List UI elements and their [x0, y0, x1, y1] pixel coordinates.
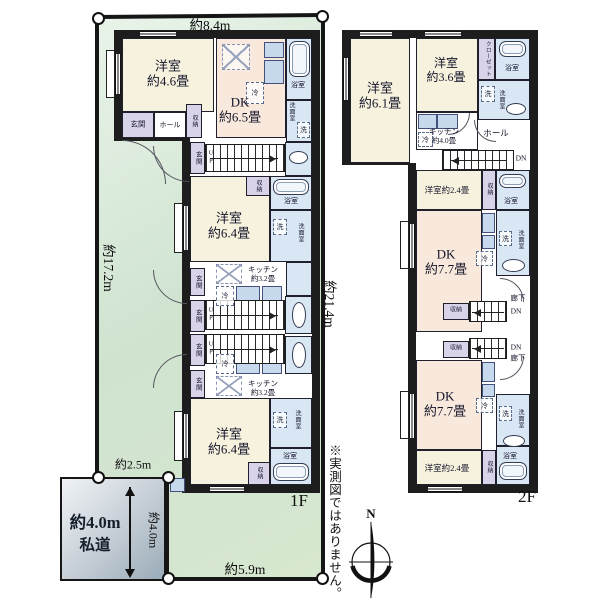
- label-western-4-6: 洋室 約4.6畳: [147, 59, 189, 90]
- shutter-box: [174, 203, 183, 253]
- label-dk-6-5: DK 約6.5畳: [219, 95, 261, 126]
- dimension-left: 約17.2m: [100, 244, 120, 292]
- label-wash-u2: 洗面室: [297, 223, 303, 243]
- table-u3: [216, 376, 242, 396]
- toilet-2f-c: [503, 435, 525, 447]
- stairs-arrow: [472, 348, 504, 349]
- label-kitchen-u2: キッチン 約3.2畳: [248, 266, 278, 284]
- toilet-2f-b: [502, 259, 525, 272]
- bathtub-u1: [289, 41, 310, 77]
- floor-2-tag: 2F: [518, 487, 536, 507]
- road-arrow-line: [129, 487, 131, 573]
- boundary-marker: [316, 572, 329, 585]
- label-western-6-4-a: 洋室 約6.4畳: [208, 211, 250, 242]
- toilet-c: [292, 342, 306, 368]
- table-u2: [216, 264, 242, 284]
- label-corridor-2: 廊下: [511, 355, 526, 364]
- floor-1-tag: 1F: [290, 491, 308, 511]
- label-bath-u1: 浴室: [291, 81, 305, 89]
- ps-box: [286, 262, 312, 296]
- label-dn-1: DN: [516, 155, 527, 164]
- label-dn-3: DN: [511, 344, 522, 353]
- label-closet-u1: 収納: [191, 115, 197, 128]
- window: [343, 58, 349, 100]
- washer-u4: 洗: [273, 412, 287, 428]
- dimension-top: 約8.4m: [190, 14, 231, 34]
- sink-u1: [264, 60, 284, 84]
- window: [409, 224, 415, 268]
- dimension-narrow: 約2.5m: [115, 456, 151, 473]
- label-hall-u1: ホール: [160, 121, 181, 129]
- stove-2f-dk-b: [482, 384, 495, 397]
- stairs-arrow: [450, 160, 506, 161]
- label-kitchen-u3: キッチン 約3.2畳: [248, 380, 278, 398]
- label-wash-u4: 洗面室: [294, 410, 300, 430]
- window: [428, 486, 462, 492]
- sink-2f-dk-a: [482, 213, 495, 233]
- label-2f-closet-c: 収納: [486, 461, 492, 474]
- toilet-b: [292, 302, 306, 328]
- washer-2f-c: 洗: [499, 406, 512, 421]
- stove-u1: [264, 42, 284, 58]
- window: [140, 31, 176, 37]
- table-u1: [222, 44, 250, 70]
- label-closet-u4: 収納: [256, 467, 262, 480]
- boundary-marker: [316, 10, 329, 23]
- label-2f-wash-a: 洗面室: [498, 90, 504, 110]
- road-label: 約4.0m 私道: [62, 509, 128, 555]
- label-bath-u4: 浴室: [283, 452, 297, 460]
- label-up-1: U P: [209, 149, 214, 164]
- window: [210, 486, 244, 492]
- stairs-arrow: [210, 349, 278, 350]
- boundary-marker: [92, 12, 105, 25]
- bathtub-u4: [273, 463, 309, 481]
- label-western-6-4-b: 洋室 約6.4畳: [208, 427, 250, 458]
- road-arrow-up: [125, 482, 135, 496]
- label-closet-u2: 収納: [255, 180, 261, 193]
- road-name-text: 私道: [62, 533, 128, 555]
- window: [183, 206, 189, 250]
- label-2f-hall: ホール: [483, 128, 509, 138]
- fridge-2f-dk-b: 冷: [476, 398, 493, 413]
- label-genkan-u4: 玄関: [194, 309, 201, 323]
- label-2f-wash-b: 洗面室: [517, 230, 523, 250]
- label-genkan-u6: 玄関: [194, 377, 201, 391]
- stairs-arrow: [210, 158, 278, 159]
- window: [409, 394, 415, 438]
- window: [183, 414, 189, 458]
- window: [115, 54, 121, 94]
- label-bath-u2: 浴室: [284, 197, 298, 205]
- washer-2f-a: 洗: [481, 86, 495, 102]
- fridge-u3: 冷: [216, 354, 234, 374]
- shutter-box: [106, 50, 115, 98]
- bathtub-2f-b: [499, 174, 526, 188]
- label-up-2: U P: [209, 306, 214, 321]
- boundary-marker: [162, 572, 175, 585]
- dimension-right: 約21.4m: [321, 280, 341, 328]
- label-2f-western-3-6: 洋室 約3.6畳: [426, 56, 465, 84]
- shutter-box: [400, 221, 409, 269]
- label-dn-2: DN: [511, 308, 522, 317]
- label-closet-box-2: 収納: [450, 345, 462, 352]
- window: [360, 31, 392, 37]
- toilet-2f-a: [506, 103, 526, 115]
- label-genkan-u5: 玄関: [194, 343, 201, 357]
- label-closet-box-1: 収納: [450, 307, 462, 314]
- label-2f-wash-c: 洗面室: [517, 409, 523, 429]
- room-wash-u2: [270, 210, 312, 262]
- label-genkan-u3: 玄関: [194, 275, 201, 289]
- stove-2f-dk-a: [482, 235, 495, 249]
- toilet-a: [289, 151, 308, 164]
- stairs-arrow: [472, 312, 504, 313]
- label-2f-kitchen: キッチン 約4.0畳: [429, 128, 459, 146]
- boundary-marker: [92, 471, 105, 484]
- label-2f-dk-a: DK 約7.7畳: [425, 247, 467, 278]
- dimension-bottom: 約5.9m: [225, 558, 266, 578]
- shutter-box: [174, 411, 183, 461]
- window: [425, 31, 461, 37]
- compass-icon: N: [342, 504, 400, 600]
- label-2f-closet-a: クローゼット: [484, 41, 490, 77]
- bathtub-u2: [273, 179, 309, 195]
- sink-2f-dk-b: [482, 362, 495, 382]
- label-wash-u1: 洗面室: [288, 102, 294, 122]
- washer-u1: 洗: [297, 122, 310, 138]
- stairs-arrow: [210, 315, 278, 316]
- boundary-marker: [162, 471, 175, 484]
- road-width-text: 約4.0m: [62, 509, 128, 533]
- label-2f-western-2-4-a: 洋室約2.4畳: [425, 185, 470, 195]
- washer-u2: 洗: [273, 219, 287, 235]
- fridge-2f-dk-a: 冷: [476, 251, 493, 266]
- label-2f-closet-b: 収納: [486, 183, 492, 196]
- road-arrow-down: [125, 569, 135, 583]
- dimension-road-vertical: 約4.0m: [146, 512, 163, 548]
- label-2f-dk-b: DK 約7.7畳: [424, 389, 466, 420]
- label-2f-bath-c: 浴室: [503, 452, 517, 460]
- compass-north-label: N: [366, 506, 376, 521]
- shutter-box: [400, 391, 409, 439]
- washer-2f-b: 洗: [499, 231, 512, 246]
- fridge-u2: 冷: [216, 286, 234, 306]
- label-2f-western-2-4-b: 洋室約2.4畳: [425, 463, 470, 473]
- label-2f-bath-b: 浴室: [504, 197, 518, 205]
- bathtub-2f-a: [499, 41, 526, 57]
- label-up-3: U P: [209, 340, 214, 355]
- bathtub-2f-c: [499, 462, 527, 480]
- label-genkan-u1: 玄関: [131, 121, 146, 130]
- label-genkan-u2: 玄関: [194, 151, 201, 165]
- floor-plan-canvas: 冷冷冷洗洗洗洋室 約4.6畳DK 約6.5畳浴室洗面室玄関ホール収納玄関U P収…: [0, 0, 600, 600]
- label-2f-western-6-1: 洋室 約6.1畳: [359, 81, 401, 112]
- label-corridor-1: 廊下: [511, 295, 526, 304]
- label-2f-bath-a: 浴室: [505, 64, 519, 72]
